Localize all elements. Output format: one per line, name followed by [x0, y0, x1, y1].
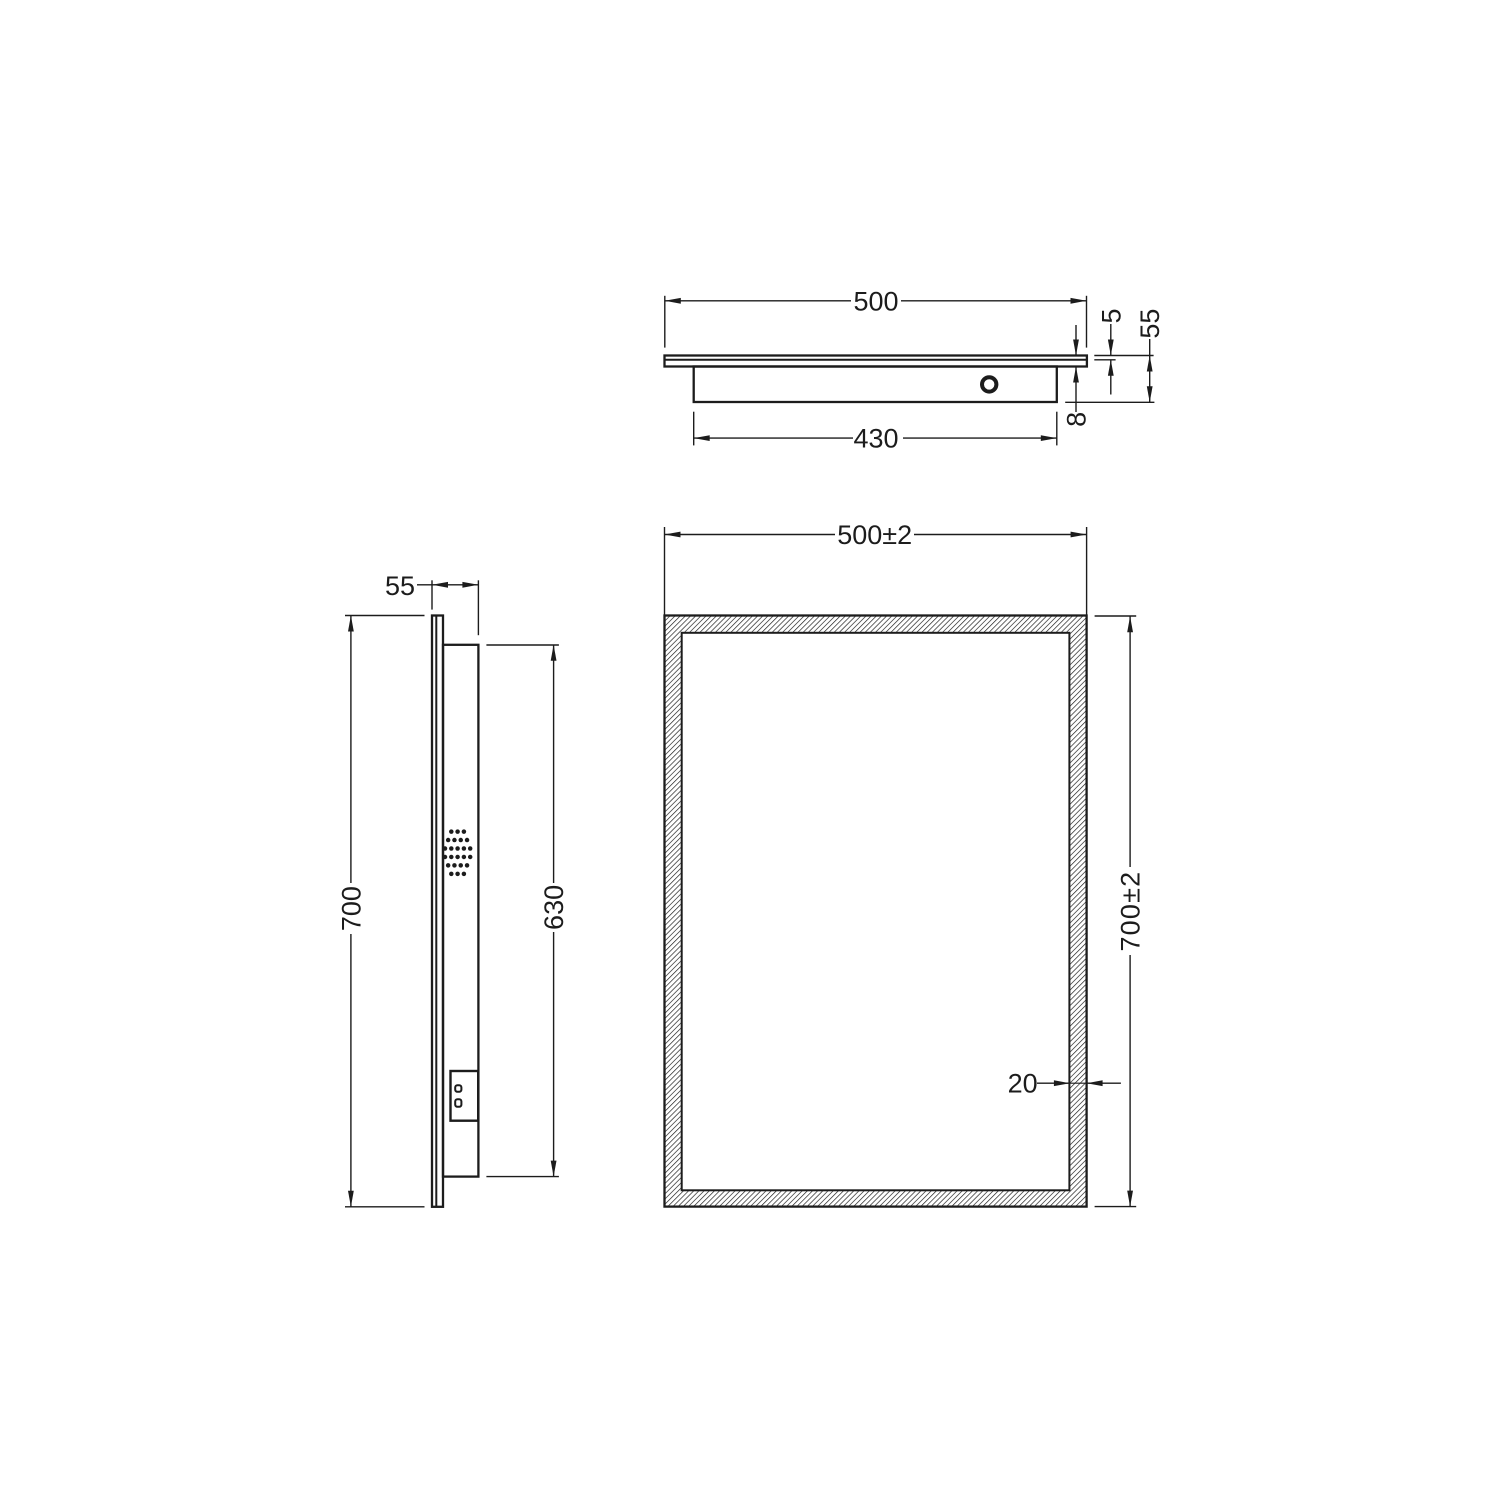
svg-text:5: 5 [1096, 308, 1126, 323]
svg-text:430: 430 [853, 424, 898, 454]
svg-text:500±2: 500±2 [837, 520, 912, 550]
svg-text:500: 500 [853, 286, 898, 316]
svg-text:630: 630 [539, 885, 569, 930]
svg-text:8: 8 [1062, 412, 1092, 427]
svg-text:20: 20 [1008, 1069, 1038, 1099]
svg-text:700: 700 [336, 886, 366, 931]
svg-text:700±2: 700±2 [1116, 871, 1146, 952]
svg-text:55: 55 [1135, 309, 1165, 339]
svg-text:55: 55 [385, 571, 415, 601]
